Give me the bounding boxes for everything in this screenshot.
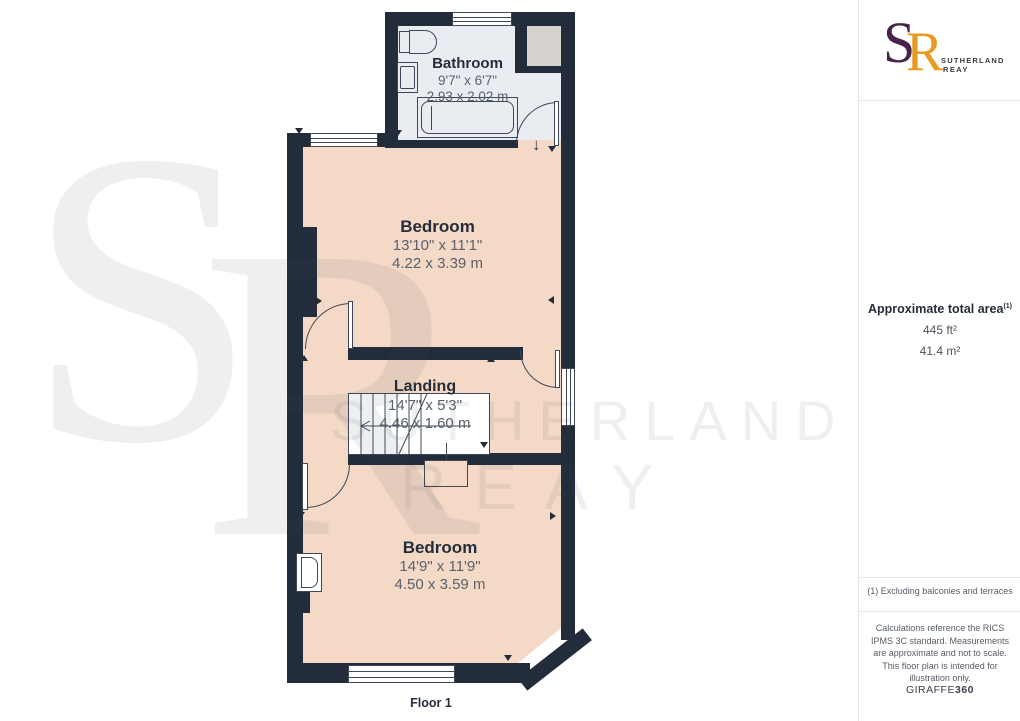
floorplan-page: ↓ Bathroom 9'7" x 6'7" 2.93 x 2.02 m Bed… [0,0,1020,721]
wall-marker [394,130,402,136]
window [452,12,512,26]
wall [561,12,575,368]
chimney-breast [303,227,317,317]
room-dimensions-imperial: 14'9" x 11'9" [330,558,550,576]
room-dimensions-metric: 4.46 x 1.60 m [330,415,520,433]
wall-marker [297,512,305,518]
wall [348,347,523,360]
wall-marker [504,655,512,661]
chimney-flue-symbol [424,460,468,487]
logo-wordmark: SUTHERLAND REAY [941,56,1005,74]
room-dimensions-metric: 2.93 x 2.02 m [395,89,540,105]
wall-marker [480,442,488,448]
total-area-block: Approximate total area(1) 445 ft² 41.4 m… [859,302,1020,358]
floor-label: Floor 1 [285,696,577,710]
door-leaf [555,350,560,388]
room-dimensions-imperial: 13'10" x 11'1" [330,237,545,255]
room-bedroom-1: Bedroom 13'10" x 11'1" 4.22 x 3.39 m [330,217,545,272]
divider [859,100,1020,101]
wall-marker [548,146,556,152]
sutherland-reay-logo: S R SUTHERLAND REAY [883,20,1013,84]
window [561,368,575,426]
wall-marker [394,18,402,24]
wall-marker [316,297,322,305]
room-dimensions-metric: 4.50 x 3.59 m [330,576,550,594]
toilet-symbol [409,30,437,54]
window [348,665,455,683]
bathtub-symbol [421,101,514,134]
watermark-letter-s: S [25,88,259,508]
wall-marker [295,128,303,134]
room-name: Bedroom [330,538,550,558]
entry-arrow-icon: ↓ [532,135,541,155]
footnote-marker: (1) [1003,303,1012,310]
door-leaf [348,301,353,349]
door-leaf [302,463,308,510]
total-area-heading-text: Approximate total area [868,302,1003,316]
giraffe360-logo-suffix: 360 [955,684,974,696]
logo-name-line1: SUTHERLAND [941,56,1005,65]
chimney-flue-symbol [446,443,447,461]
room-name: Landing [330,378,520,397]
total-area-metric: 41.4 m² [859,344,1020,358]
info-sidebar: S R SUTHERLAND REAY Approximate total ar… [858,0,1020,721]
wall [385,140,518,148]
total-area-imperial: 445 ft² [859,323,1020,337]
total-area-heading: Approximate total area(1) [859,302,1020,316]
room-name: Bedroom [330,217,545,237]
bathtub-symbol [431,106,432,130]
logo-monogram-r: R [906,24,943,80]
room-dimensions-imperial: 9'7" x 6'7" [395,73,540,89]
window [310,133,378,147]
room-dimensions-metric: 4.22 x 3.39 m [330,255,545,273]
wall [561,426,575,640]
giraffe360-logo: GIRAFFE360 [859,684,1020,696]
divider [859,611,1020,612]
divider [859,577,1020,578]
room-dimensions-imperial: 14'7" x 5'3" [330,397,520,415]
room-landing: Landing 14'7" x 5'3" 4.46 x 1.60 m [330,378,520,432]
wall-marker [550,512,556,520]
wall-marker [548,296,554,304]
area-footnote: (1) Excluding balconies and terraces [863,586,1017,596]
room-name: Bathroom [395,55,540,73]
room-bathroom: Bathroom 9'7" x 6'7" 2.93 x 2.02 m [395,55,540,105]
wall-marker [487,356,495,362]
logo-name-line2: REAY [943,65,1005,74]
wall [298,592,310,613]
wall-marker [300,355,308,361]
giraffe360-logo-prefix: GIRAFFE [906,684,955,696]
disclaimer-text: Calculations reference the RICS IPMS 3C … [869,622,1011,685]
room-bedroom-2: Bedroom 14'9" x 11'9" 4.50 x 3.59 m [330,538,550,593]
wall-marker [505,458,513,464]
fireplace-symbol [301,557,318,588]
door-leaf [554,101,559,146]
